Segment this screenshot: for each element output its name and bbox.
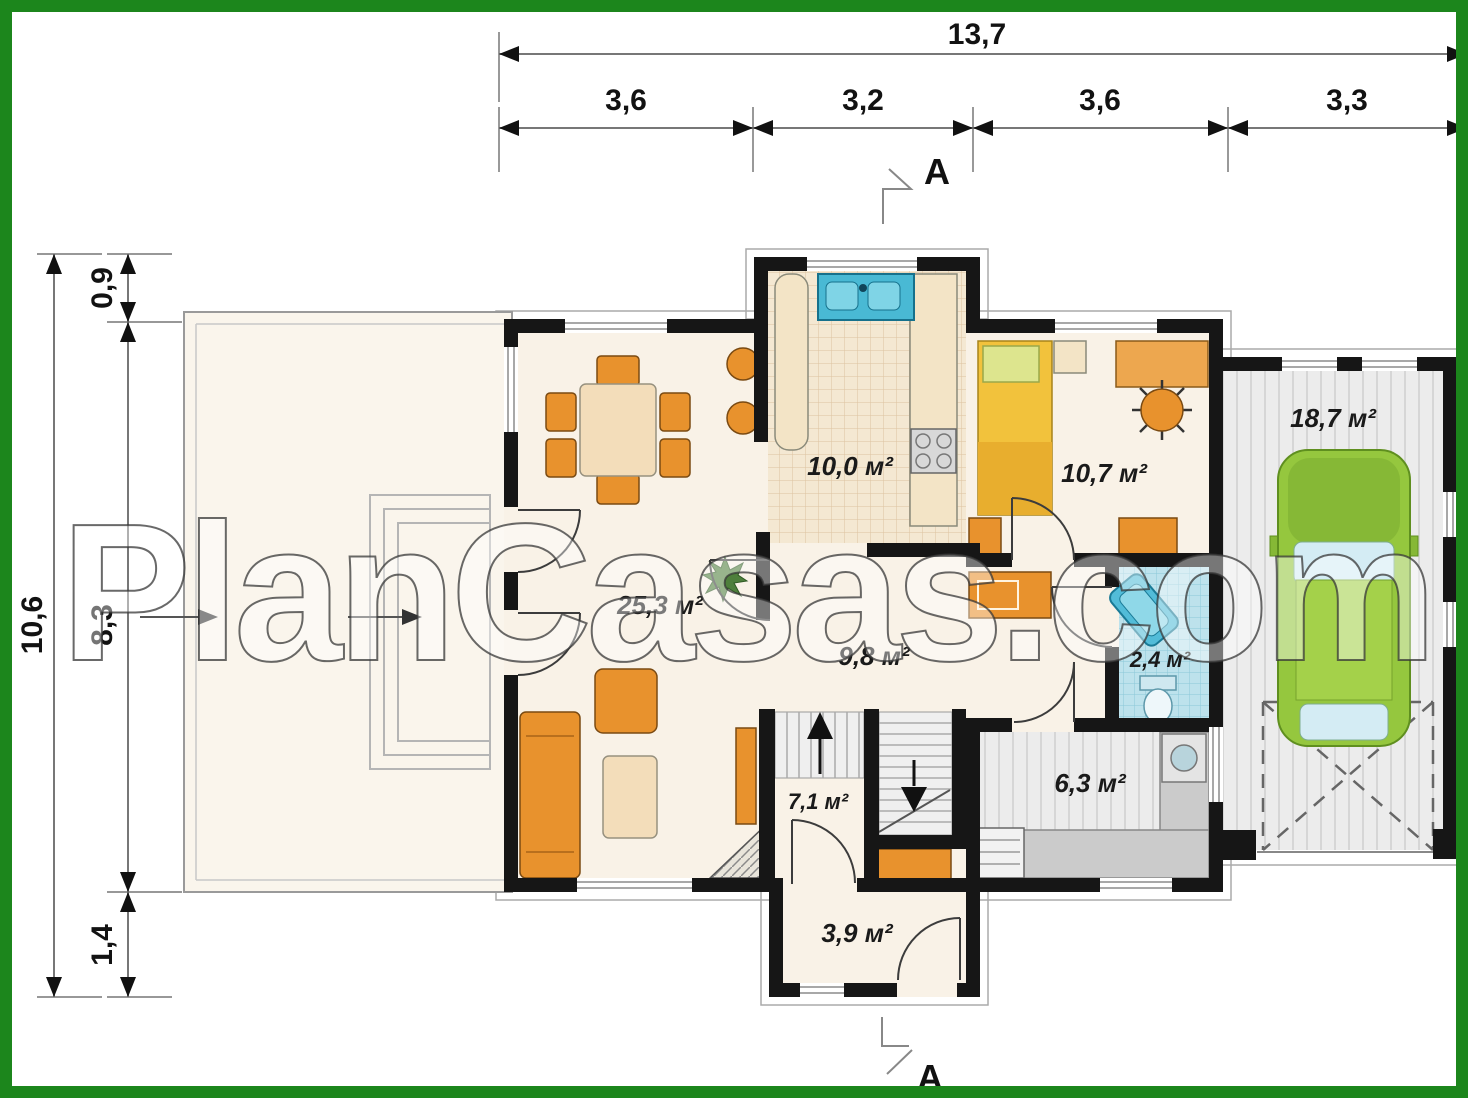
dim-left-seg-3: 1,4 bbox=[86, 924, 119, 966]
dining-chair bbox=[660, 439, 690, 477]
stair-hall-area-label: 7,1 м² bbox=[788, 789, 849, 814]
dining-chair bbox=[546, 393, 576, 431]
window bbox=[800, 983, 844, 997]
coffee-table bbox=[603, 756, 657, 838]
window bbox=[1443, 492, 1457, 537]
dim-left-seg-1: 0,9 bbox=[86, 267, 119, 309]
window bbox=[504, 347, 518, 432]
window bbox=[1055, 319, 1157, 333]
window bbox=[565, 319, 667, 333]
dim-left-total: 10,6 bbox=[16, 596, 49, 654]
section-label-bottom: A bbox=[917, 1057, 943, 1098]
office-chair bbox=[1132, 380, 1192, 440]
pillow bbox=[983, 346, 1039, 382]
floor-plan-drawing: 10,0 м² 10,7 м² 18,7 м² 25,3 м² 9,8 м² 2… bbox=[12, 12, 1468, 1098]
dim-top-seg-1: 3,6 bbox=[605, 84, 647, 117]
dim-top-seg-3: 3,6 bbox=[1079, 84, 1121, 117]
dining-chair bbox=[546, 439, 576, 477]
dim-top-seg-4: 3,3 bbox=[1326, 84, 1368, 117]
kitchen-area-label: 10,0 м² bbox=[807, 451, 894, 481]
dim-top-seg-2: 3,2 bbox=[842, 84, 884, 117]
garage-area-label: 18,7 м² bbox=[1290, 403, 1377, 433]
faucet bbox=[859, 284, 867, 292]
dining-table bbox=[580, 384, 656, 476]
dim-top-total: 13,7 bbox=[948, 18, 1006, 51]
window bbox=[1209, 727, 1223, 802]
window bbox=[1362, 357, 1417, 371]
car-rear-window bbox=[1300, 704, 1388, 740]
window bbox=[1100, 878, 1172, 892]
window bbox=[807, 257, 917, 271]
floor-plan-page: 10,0 м² 10,7 м² 18,7 м² 25,3 м² 9,8 м² 2… bbox=[0, 0, 1468, 1098]
dining-chair bbox=[660, 393, 690, 431]
bedside-table bbox=[1054, 341, 1086, 373]
utility-counter bbox=[1022, 830, 1209, 878]
kitchen-counter-left bbox=[775, 274, 808, 450]
shelf-cabinet bbox=[736, 728, 756, 824]
dining-chair bbox=[597, 356, 639, 386]
window bbox=[577, 878, 692, 892]
watermark: PlanCasas.com bbox=[61, 483, 1432, 702]
boiler bbox=[976, 828, 1024, 878]
vestibule-area-label: 3,9 м² bbox=[821, 918, 894, 948]
window bbox=[1443, 602, 1457, 647]
utility-area-label: 6,3 м² bbox=[1054, 768, 1127, 798]
section-label-top: A bbox=[924, 151, 950, 192]
window bbox=[1282, 357, 1337, 371]
